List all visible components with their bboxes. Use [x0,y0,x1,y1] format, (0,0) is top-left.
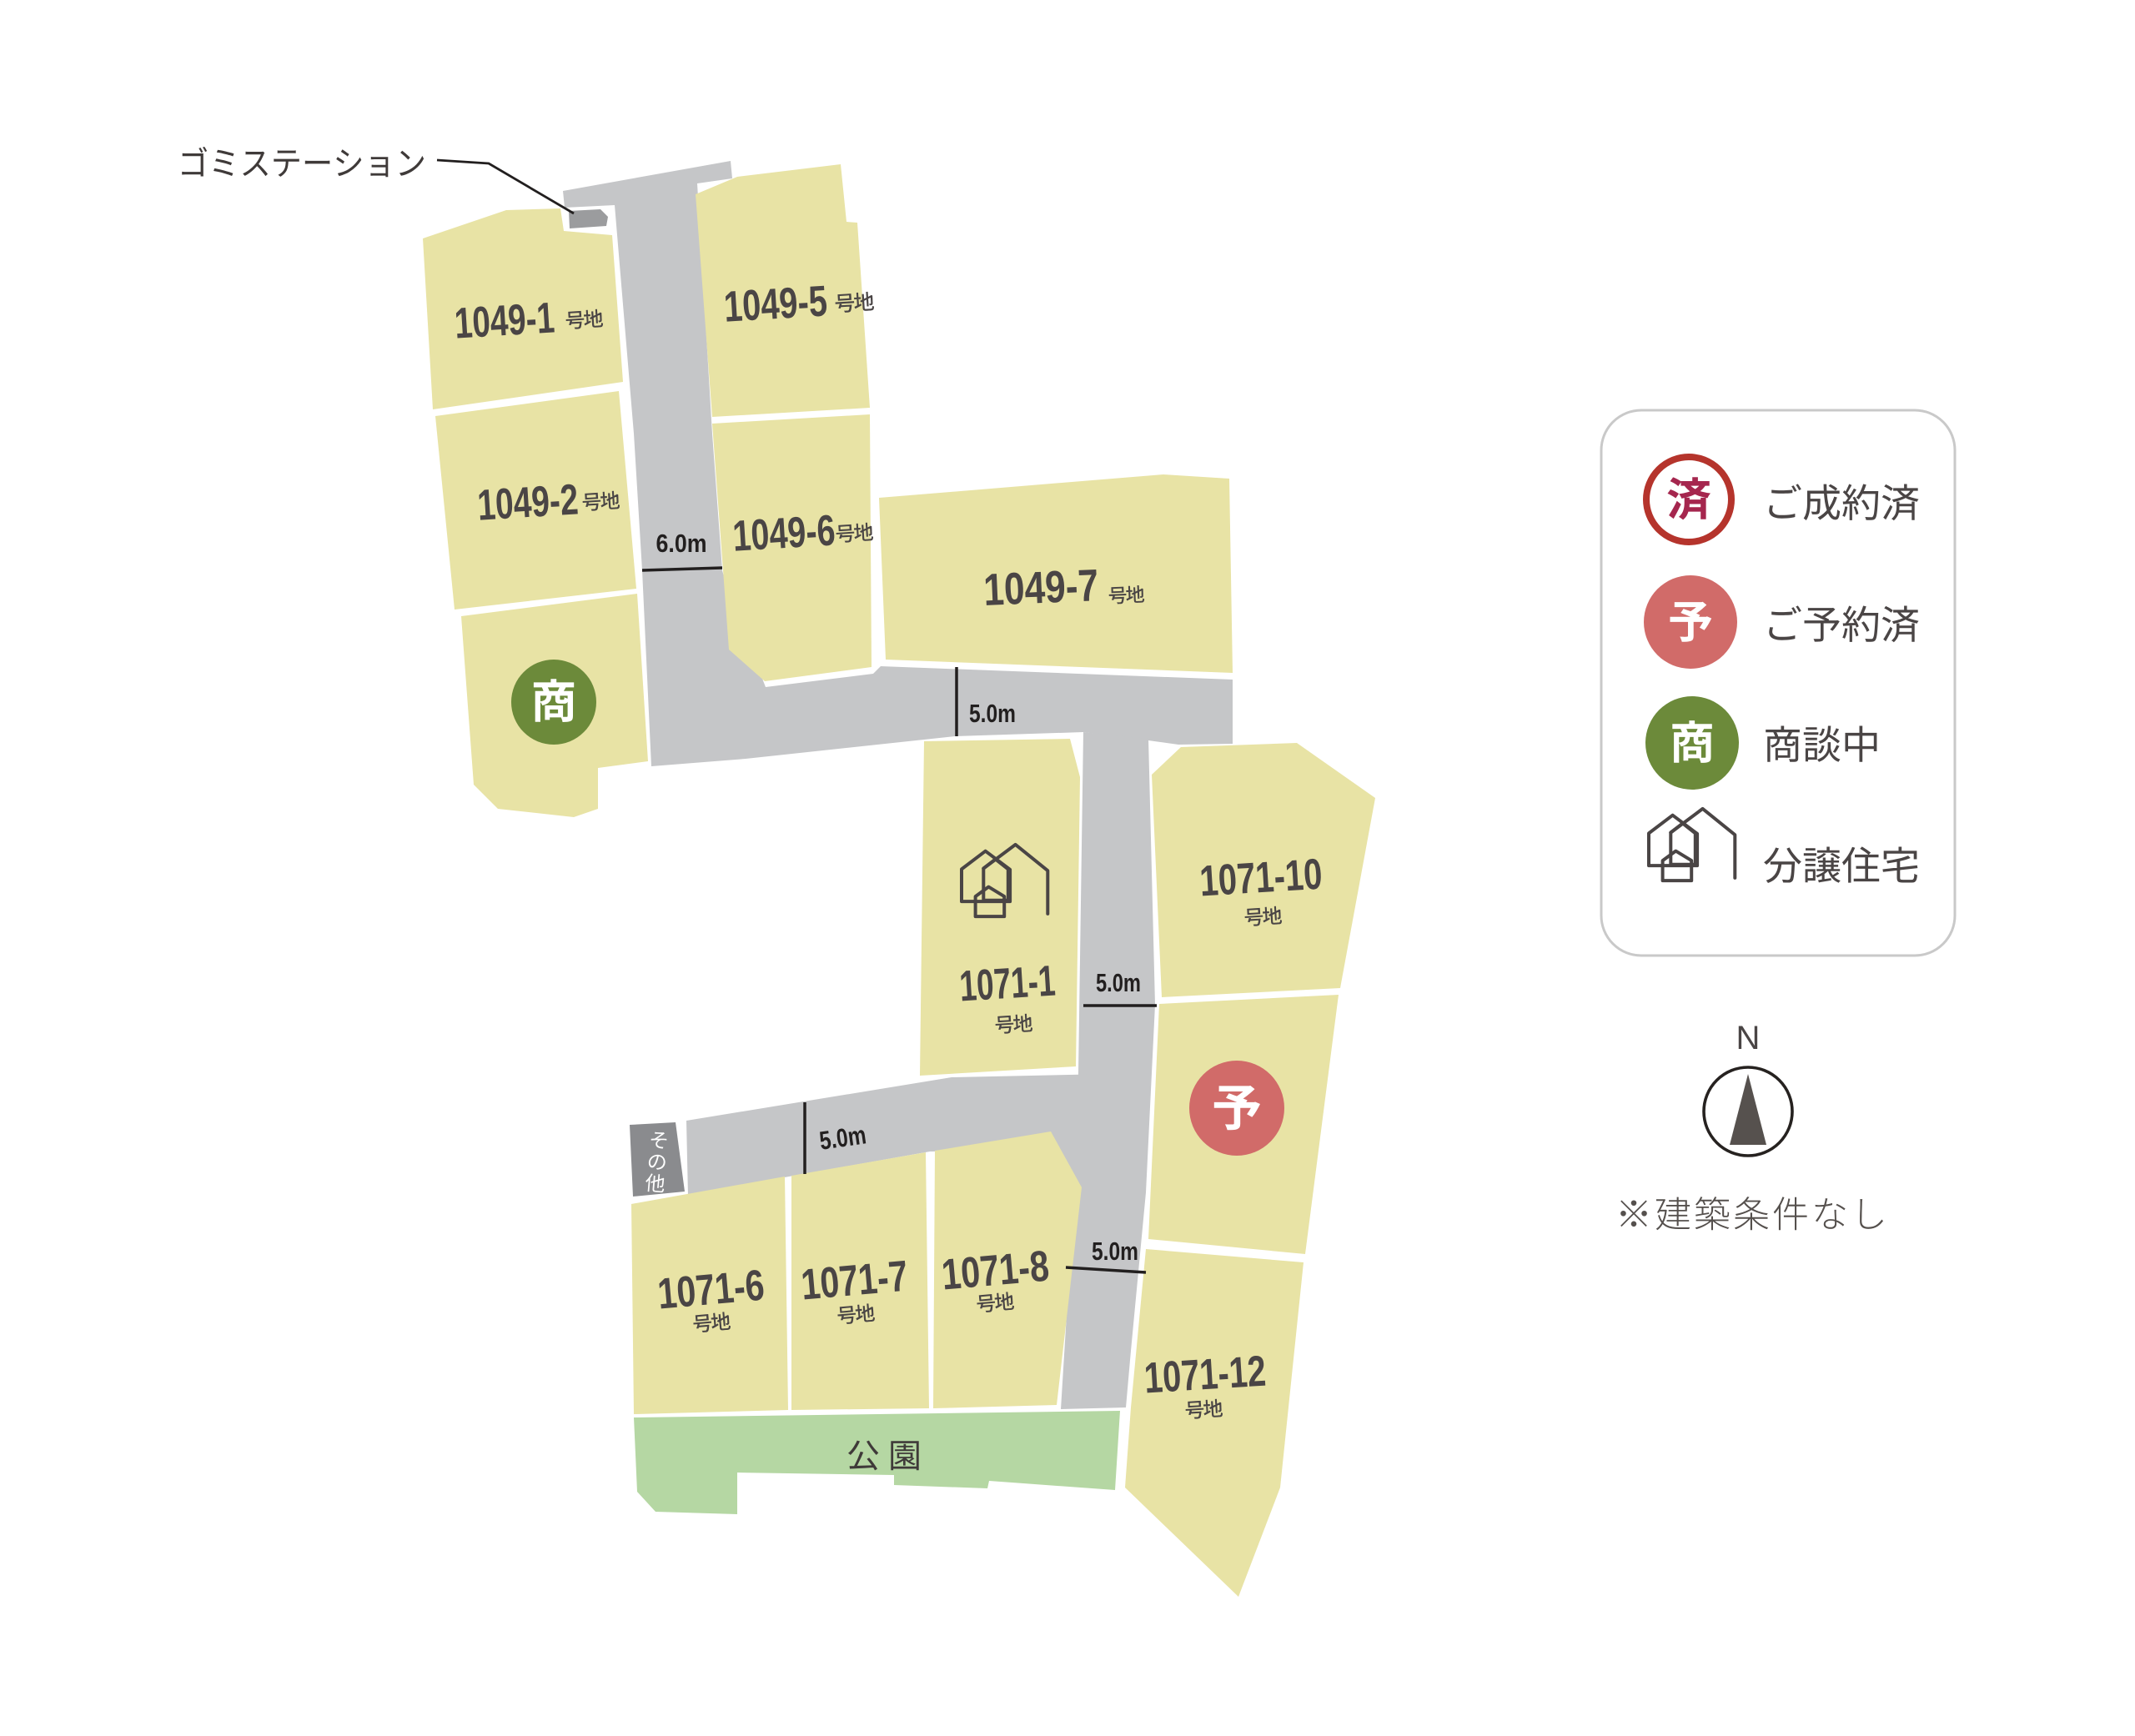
svg-text:1071-8: 1071-8 [940,1242,1052,1300]
svg-text:5.0m: 5.0m [969,699,1016,728]
svg-text:1071-7: 1071-7 [799,1252,910,1310]
svg-text:5.0m: 5.0m [1092,1237,1138,1266]
svg-text:1049-2: 1049-2 [476,475,580,529]
svg-text:1071-12: 1071-12 [1143,1347,1267,1403]
svg-text:5.0m: 5.0m [1096,968,1141,997]
svg-text:1071-6: 1071-6 [656,1262,766,1319]
svg-text:1049-6: 1049-6 [731,506,836,560]
svg-text:1049-7: 1049-7 [982,560,1099,615]
svg-text:1049-1: 1049-1 [453,294,555,348]
svg-text:6.0m: 6.0m [656,529,707,558]
svg-text:N: N [1736,1020,1761,1056]
svg-text:1071-1: 1071-1 [958,957,1057,1011]
svg-text:1049-5: 1049-5 [722,277,828,331]
svg-text:1071-10: 1071-10 [1198,850,1324,906]
